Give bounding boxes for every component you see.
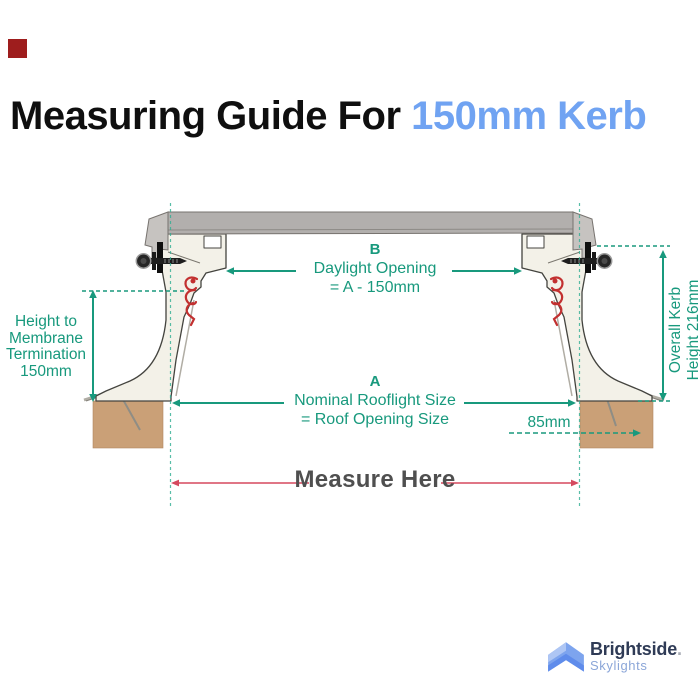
logo-name-text: Brightside (590, 639, 677, 659)
right-kerb-notch (527, 236, 544, 248)
roof-chevron-icon (546, 639, 586, 677)
measure-here-label: Measure Here (275, 466, 475, 494)
membrane-line4: 150mm (0, 364, 92, 381)
logo-name: Brightside. (590, 639, 682, 659)
measuring-guide-page: Measuring Guide For 150mm Kerb (0, 0, 700, 700)
brightside-logo: Brightside. Skylights (546, 639, 682, 677)
overall-kerb-line1: Overall Kerb (667, 255, 685, 405)
overall-kerb-line2: Height 216mm (685, 255, 700, 405)
rooflight-size-label: A Nominal Rooflight Size = Roof Opening … (263, 372, 487, 429)
rooflight-size-line1: Nominal Rooflight Size (263, 391, 487, 410)
kerb-cross-section-diagram (0, 0, 700, 700)
daylight-opening-line2: = A - 150mm (263, 278, 487, 297)
dimension-tag-b: B (263, 240, 487, 259)
rooflight-size-line2: = Roof Opening Size (263, 410, 487, 429)
logo-name-dot: . (677, 639, 682, 659)
overall-kerb-height-label: Overall Kerb Height 216mm (667, 255, 700, 405)
base-offset-label: 85mm (517, 413, 581, 432)
membrane-line2: Membrane (0, 331, 92, 348)
daylight-opening-line1: Daylight Opening (263, 259, 487, 278)
membrane-line3: Termination (0, 347, 92, 364)
dimension-tag-a: A (263, 372, 487, 391)
logo-subtitle: Skylights (590, 659, 682, 673)
daylight-opening-label: B Daylight Opening = A - 150mm (263, 240, 487, 297)
membrane-line1: Height to (0, 314, 92, 331)
logo-text: Brightside. Skylights (590, 639, 682, 673)
membrane-height-label: Height to Membrane Termination 150mm (0, 314, 92, 380)
left-kerb-notch (204, 236, 221, 248)
